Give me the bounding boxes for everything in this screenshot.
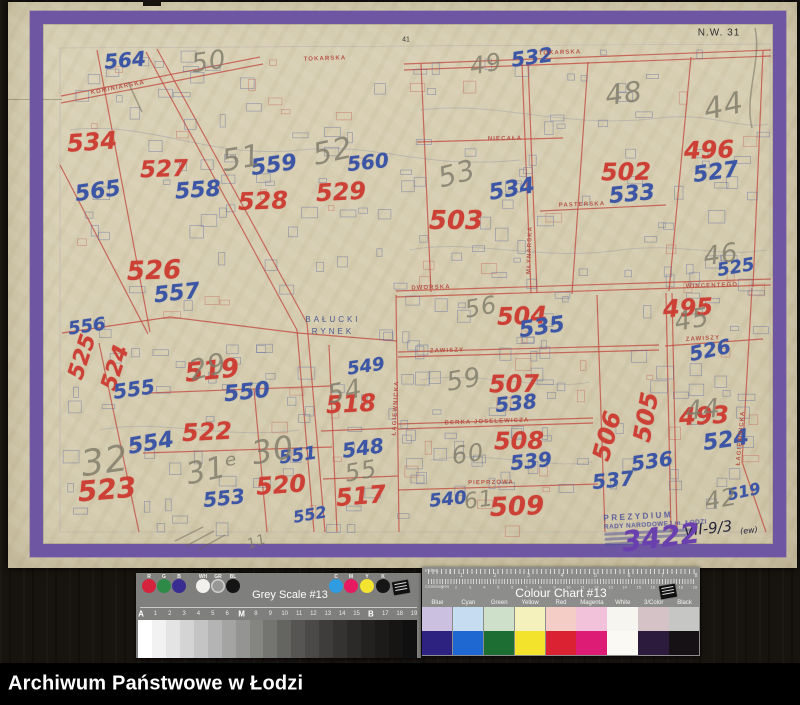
inch-number: 8 (695, 573, 698, 579)
colour-patch-light (546, 607, 576, 631)
paper-edge-notch (143, 0, 161, 6)
grey-scale-title: Grey Scale #13 (252, 589, 328, 601)
plot-number-blue: 537 (591, 468, 635, 492)
wedge-scale-label: 13 (324, 611, 331, 617)
plot-number-pencil: 54 (325, 376, 365, 409)
plot-number-blue: 533 (608, 182, 656, 208)
calibration-dot-g (157, 579, 171, 593)
colour-column-label: White (615, 600, 630, 606)
plot-number-pencil: 45 (672, 304, 711, 336)
plot-number-blue: 539 (509, 449, 553, 473)
plot-number-red: 517 (335, 482, 387, 510)
plot-number-pencil: 61 (463, 488, 496, 514)
wedge-step (347, 620, 361, 658)
colour-patch-dark (515, 631, 545, 655)
wedge-step (180, 620, 194, 658)
colour-patch-dark (484, 631, 514, 655)
wedge-scale-label: 10 (281, 611, 288, 617)
street-name-label: ZAWISZY (430, 347, 465, 354)
wedge-step (361, 620, 375, 658)
wedge-step (208, 620, 222, 658)
plot-number-red: 528 (238, 188, 289, 214)
plot-number-red: 529 (315, 179, 366, 206)
wedge-step (389, 620, 403, 658)
wedge-scale-label: 6 (226, 611, 229, 617)
colour-column-label: Green (491, 600, 508, 606)
cm-number: 18 (679, 585, 683, 590)
centimetres-label: Centimetres (425, 584, 449, 589)
wedge-scale-label: 8 (254, 611, 257, 617)
wedge-step (277, 620, 291, 658)
colour-column-label: Blue (431, 600, 443, 606)
cm-number: 6 (511, 585, 513, 590)
inch-number: 4 (561, 573, 564, 579)
plot-number-pencil: 30 (249, 431, 297, 470)
colour-column-label: Magenta (580, 600, 603, 606)
plot-number-blue: 564 (103, 48, 146, 72)
grey-step-wedge (138, 620, 417, 658)
inch-number: 5 (594, 573, 597, 579)
cm-number: 5 (497, 585, 499, 590)
colour-patch-dark (546, 631, 576, 655)
kodak-logo-chip (392, 580, 410, 596)
colour-patch-light (484, 607, 514, 631)
inch-number: 6 (628, 573, 631, 579)
calibration-dot-wh (196, 579, 210, 593)
plot-number-blue: 558 (174, 178, 221, 203)
archival-scan-viewport: 5345275285295265024965035255245195185225… (0, 0, 800, 705)
calibration-dot-c (329, 579, 343, 593)
wedge-step (305, 620, 319, 658)
cm-number: 15 (637, 585, 641, 590)
plot-number-blue: 553 (202, 486, 246, 510)
colour-patch-dark (576, 631, 606, 655)
calibration-dot-gr (211, 579, 225, 593)
plot-number-pencil: 51 (220, 141, 265, 178)
plot-number-pencil: 32 (79, 441, 131, 483)
wedge-scale-label: 18 (396, 611, 403, 617)
sheet-code: N.W. 31 (698, 28, 741, 39)
dot-letter: K (381, 574, 385, 580)
inch-number: 3 (527, 573, 530, 579)
wedge-step (166, 620, 180, 658)
dot-letter: Y (365, 574, 368, 580)
wedge-scale-label: A (138, 610, 144, 619)
colour-column-label: Yellow (522, 600, 539, 606)
plot-number-pencil: 49 (468, 49, 504, 78)
wedge-scale-label: 15 (353, 611, 360, 617)
plot-number-pencil: 55 (343, 456, 379, 485)
wedge-scale-label: M (238, 610, 245, 619)
wedge-step (263, 620, 277, 658)
wedge-scale-label: 5 (211, 611, 214, 617)
balucki-rynek-label: BAŁUCKI RYNEK (305, 314, 360, 338)
plot-number-blue: 550 (223, 380, 271, 407)
wedge-scale-label: 17 (382, 611, 389, 617)
colour-column-label: Red (555, 600, 566, 606)
wedge-step (236, 620, 250, 658)
calibration-dot-y (360, 579, 374, 593)
wedge-step (403, 620, 417, 658)
colour-patch-light (453, 607, 483, 631)
dot-letter: BL (230, 574, 237, 580)
plot-number-pencil: 60 (450, 440, 486, 468)
inch-number: 1 (460, 573, 463, 579)
dot-letter: B (177, 574, 181, 580)
plot-number-pencil: 52 (310, 133, 356, 171)
cm-number: 16 (651, 585, 655, 590)
plot-number-pencil: 44 (684, 396, 721, 425)
dot-letter: G (162, 574, 166, 580)
wedge-scale-label: 1 (154, 611, 157, 617)
wedge-scale-label: 19 (411, 611, 418, 617)
grey-scale-card: Grey Scale #13 RGBWHGRBLCMYK A123456M891… (136, 573, 421, 658)
colour-patch-dark (422, 631, 452, 655)
dot-letter: M (349, 574, 353, 580)
edge-tick-number: 41 (402, 37, 410, 44)
wedge-scale-label: 4 (197, 611, 200, 617)
calibration-dot-bl (226, 579, 240, 593)
colour-patch-dark (669, 631, 699, 655)
cm-number: 14 (622, 585, 626, 590)
plot-number-red: 503 (429, 208, 483, 234)
colour-patch-light (638, 607, 668, 631)
street-name-label: PIEPRZOWA (468, 480, 514, 487)
plot-number-pencil: 46 (702, 240, 740, 271)
kodak-logo-chip (659, 584, 677, 600)
cm-number: 2 (455, 585, 457, 590)
plot-number-pencil: 44 (701, 88, 747, 126)
colour-patch-dark (638, 631, 668, 655)
dot-letter: WH (199, 574, 207, 580)
plot-number-blue: 555 (112, 376, 156, 402)
wedge-step (319, 620, 333, 658)
wedge-step (291, 620, 305, 658)
calibration-dot-b (172, 579, 186, 593)
grey-card-rule (140, 607, 417, 608)
cm-number: 13 (608, 585, 612, 590)
wedge-step (194, 620, 208, 658)
plot-number-pencil: 48 (603, 78, 644, 111)
colour-patch-light (422, 607, 452, 631)
dot-letter: GR (214, 574, 222, 580)
colour-patch-light (607, 607, 637, 631)
calibration-dot-m (344, 579, 358, 593)
colour-column-label: Black (677, 600, 692, 606)
dot-letter: C (334, 574, 338, 580)
plot-number-blue: 557 (153, 281, 201, 308)
colour-patch-light (576, 607, 606, 631)
wedge-step (152, 620, 166, 658)
wedge-step (333, 620, 347, 658)
plot-number-pencil: 50 (190, 47, 228, 78)
colour-chart-title: Colour Chart #13 (515, 586, 606, 600)
wedge-scale-label: 11 (296, 611, 302, 617)
dot-letter: R (147, 574, 151, 580)
wedge-scale-label: 14 (339, 611, 346, 617)
street-name-label: NIECAŁA (488, 136, 522, 143)
plot-number-pencil: 56 (463, 292, 499, 321)
inch-number: 2 (494, 573, 497, 579)
cm-ticks (428, 579, 696, 584)
colour-patch-dark (607, 631, 637, 655)
wedge-step (138, 620, 152, 658)
wedge-scale-label: B (368, 610, 374, 619)
wedge-scale-label: 9 (269, 611, 272, 617)
calibration-dot-k (376, 579, 390, 593)
plot-number-red: 534 (66, 128, 118, 155)
cm-number: 1 (441, 585, 443, 590)
plot-number-red: 509 (489, 493, 544, 521)
colour-column-label: Cyan (461, 600, 475, 606)
archive-name: Archiwum Państwowe w Łodzi (8, 673, 303, 696)
plot-number-red: 522 (181, 419, 232, 446)
wedge-step (250, 620, 264, 658)
wedge-step (222, 620, 236, 658)
wedge-step (375, 620, 389, 658)
plot-number-blue: 532 (510, 44, 554, 70)
colour-chart-card: Inches Centimetres 123456781234567891011… (422, 567, 700, 656)
colour-patch-light (515, 607, 545, 631)
calibration-dot-r (142, 579, 156, 593)
archive-caption-bar: Archiwum Państwowe w Łodzi (0, 663, 800, 705)
plot-number-red: 520 (255, 471, 307, 498)
inch-number: 7 (661, 573, 664, 579)
colour-column-label: 3/Color (644, 600, 663, 606)
cm-number: 4 (483, 585, 485, 590)
colour-patch-light (669, 607, 699, 631)
cm-number: 3 (469, 585, 471, 590)
colour-patch-dark (453, 631, 483, 655)
plot-number-blue: 556 (67, 315, 107, 338)
plot-number-blue: 536 (630, 448, 674, 474)
plot-number-pencil: 59 (444, 364, 483, 396)
cm-number: 19 (693, 585, 697, 590)
wedge-scale-label: 3 (182, 611, 185, 617)
wedge-scale-label: 12 (310, 611, 317, 617)
plot-number-blue: 538 (494, 391, 538, 415)
wedge-scale-label: 2 (168, 611, 171, 617)
